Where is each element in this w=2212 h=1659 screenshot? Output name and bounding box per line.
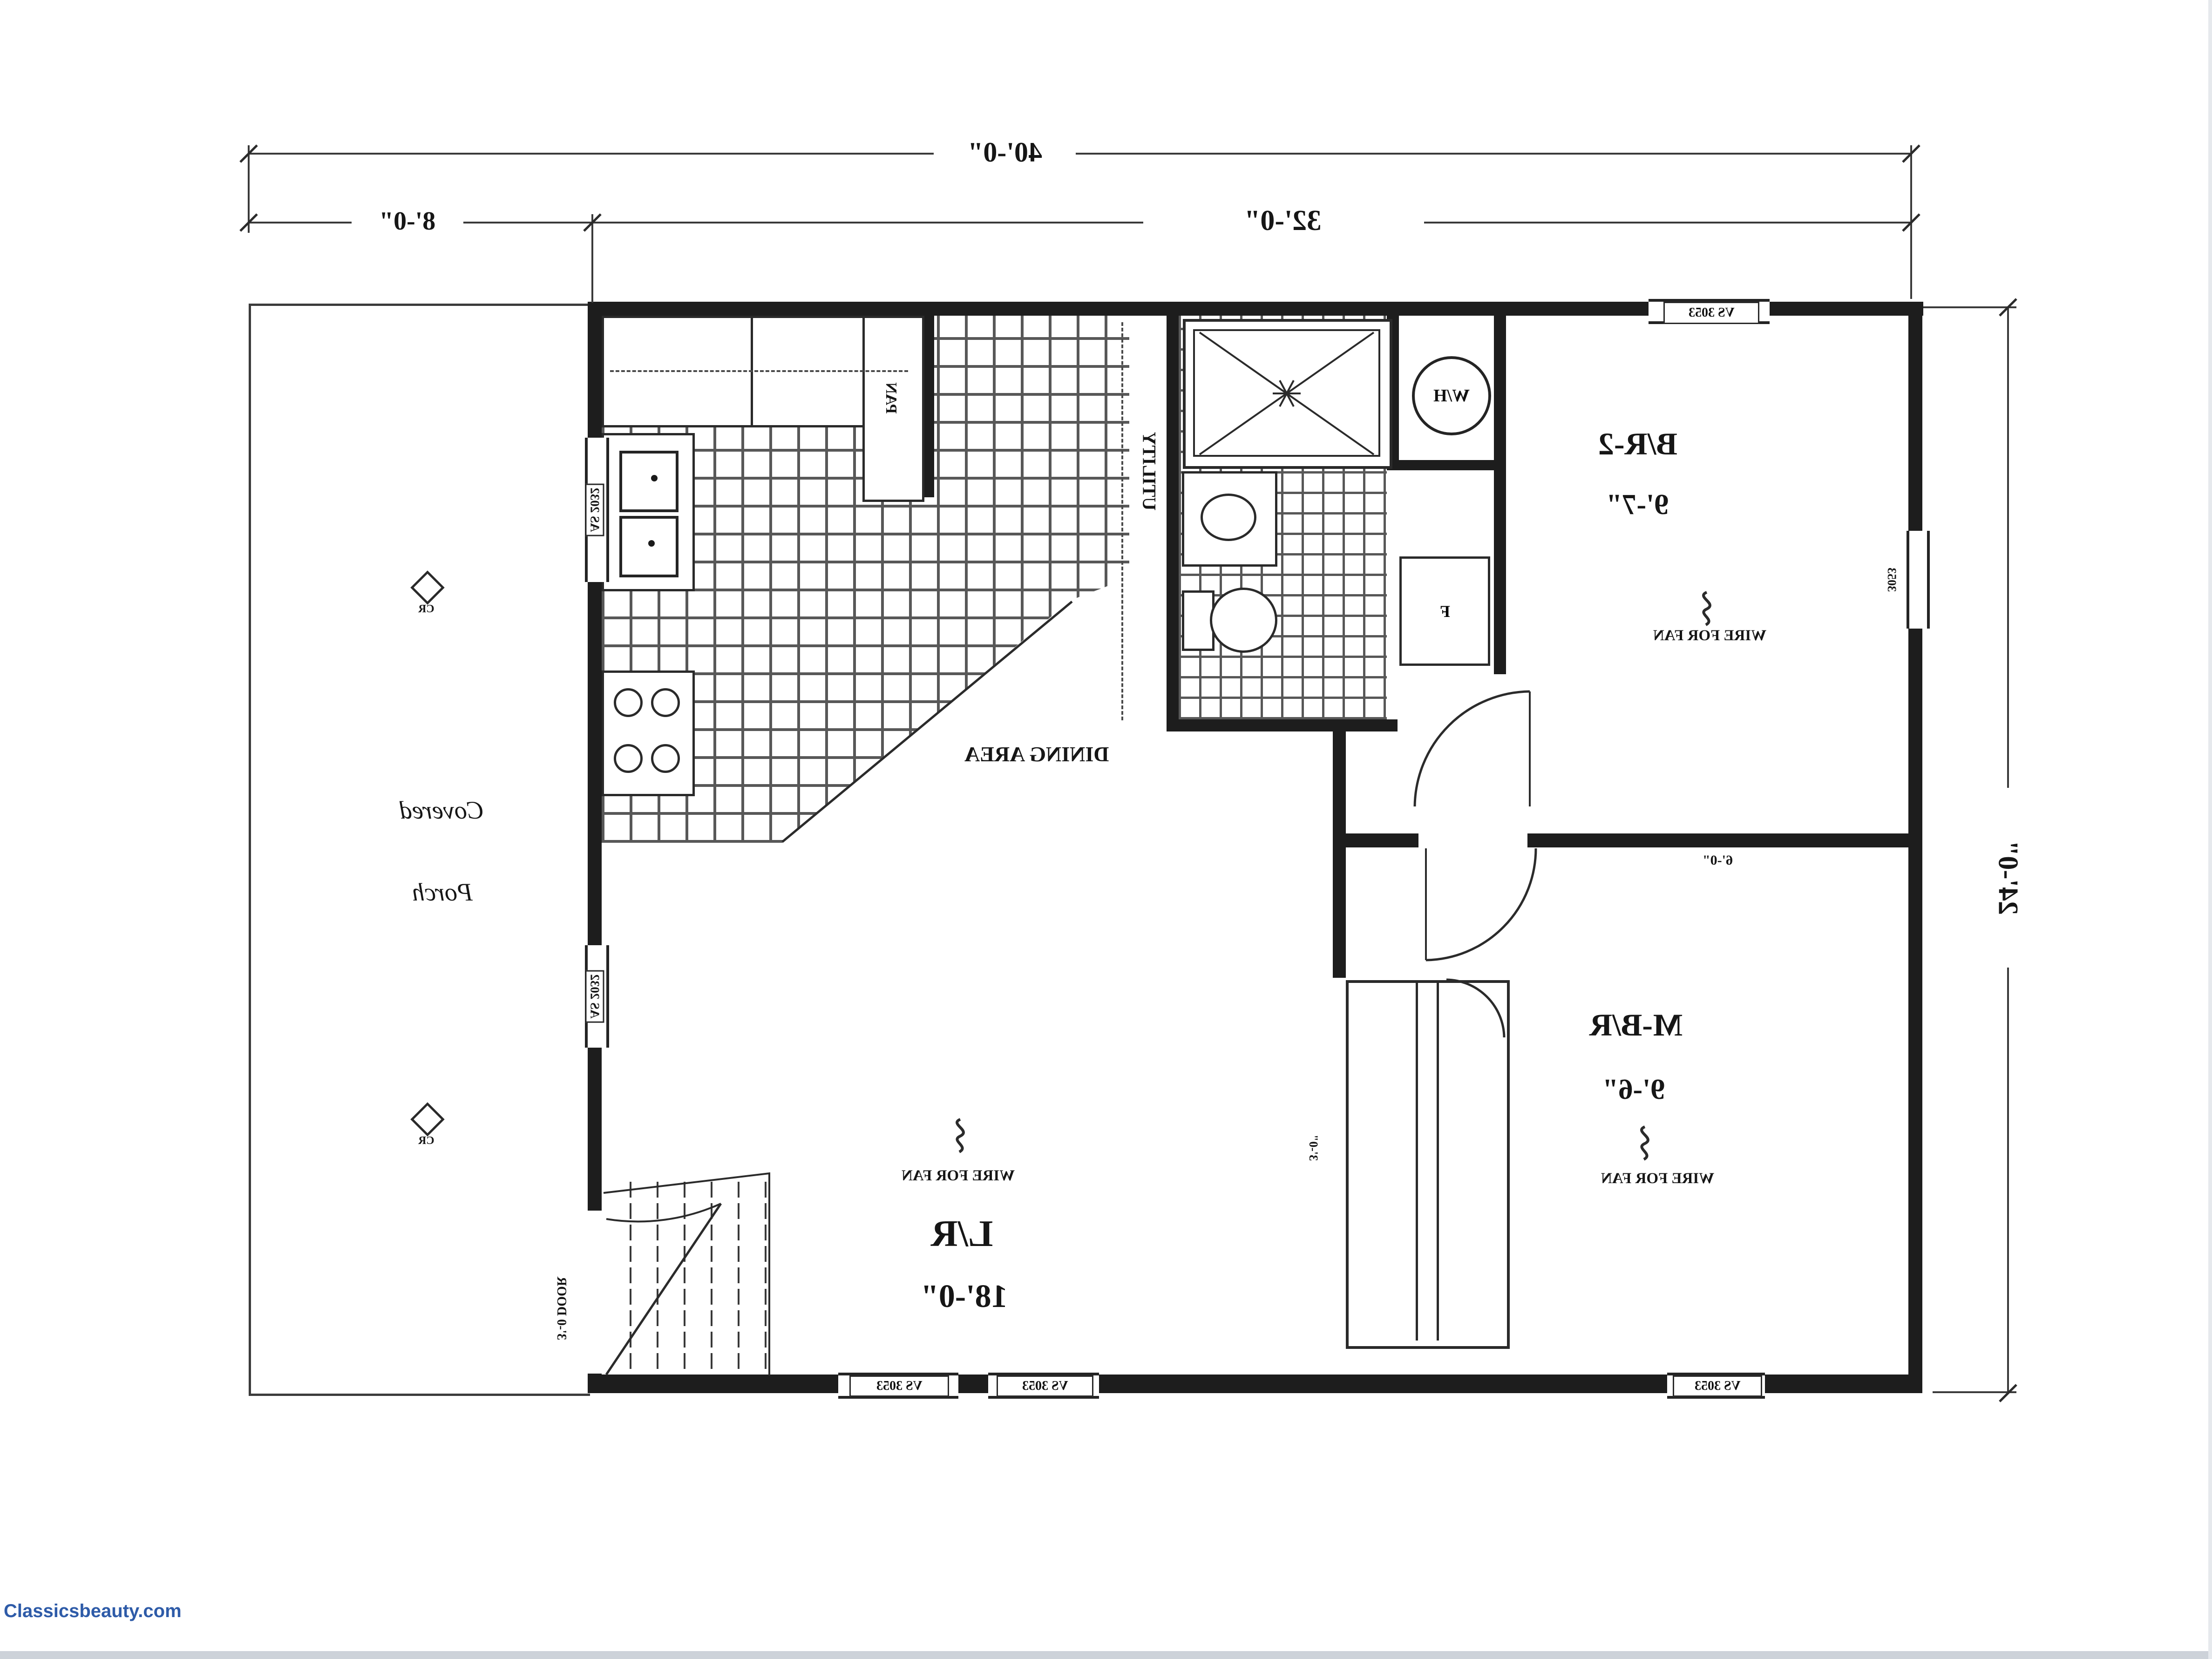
fan-symbol-master: [1642, 1127, 1648, 1159]
page-right-edge: [2208, 0, 2212, 1659]
fan-symbol-living: [957, 1119, 964, 1152]
fan-symbol-bedroom2: [1703, 592, 1710, 625]
dim-tick-marks: [240, 145, 2016, 1402]
entry-door-leaf: [606, 1204, 721, 1375]
plan-linework: [0, 0, 2212, 1659]
page-bottom-edge: [0, 1651, 2212, 1659]
bath-hall-door-arc: [1415, 691, 1530, 806]
tub-jet-asterisk: [1273, 380, 1301, 406]
kitchen-dining-boundary-line: [782, 602, 1072, 842]
master-bedroom-door-arc: [1426, 848, 1536, 960]
master-closet-door-arc: [1446, 980, 1504, 1037]
watermark: Classicsbeauty.com: [4, 1601, 182, 1622]
deck-edge-lines: [604, 1173, 769, 1375]
entry-door-arc: [606, 1204, 721, 1221]
floor-plan-page: PAN W/H F VS 3053 VS 3053 VS 3053 VS 305…: [0, 0, 2212, 1659]
